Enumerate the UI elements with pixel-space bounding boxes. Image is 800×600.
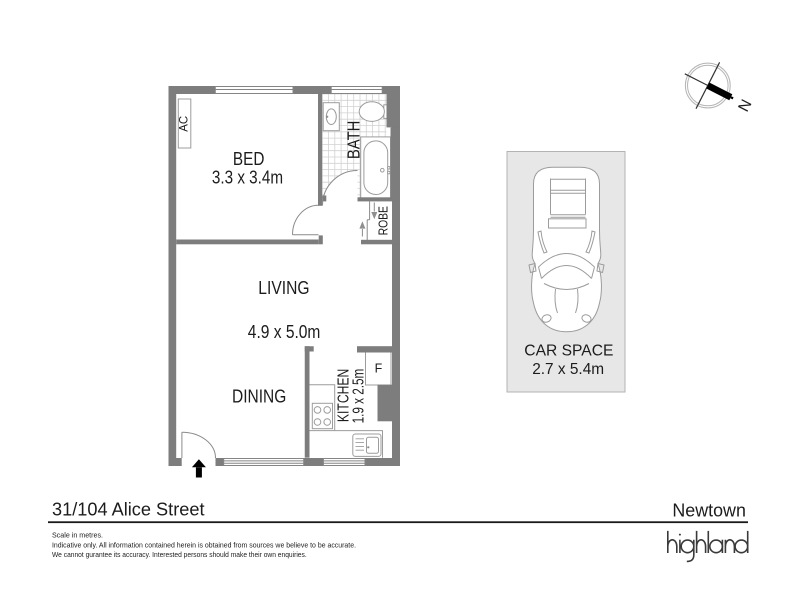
svg-text:3.3 x 3.4m: 3.3 x 3.4m bbox=[212, 166, 283, 187]
svg-text:2.7 x 5.4m: 2.7 x 5.4m bbox=[532, 361, 604, 378]
svg-text:AC: AC bbox=[177, 115, 191, 131]
svg-text:LIVING: LIVING bbox=[258, 277, 309, 298]
svg-text:N: N bbox=[734, 96, 754, 114]
svg-text:31/104 Alice Street: 31/104 Alice Street bbox=[52, 499, 204, 519]
svg-text:4.9 x 5.0m: 4.9 x 5.0m bbox=[248, 321, 321, 342]
svg-text:BATH: BATH bbox=[343, 121, 363, 160]
svg-text:1.9 x 2.5m: 1.9 x 2.5m bbox=[350, 369, 367, 424]
svg-text:DINING: DINING bbox=[232, 386, 286, 407]
svg-text:ROBE: ROBE bbox=[375, 206, 390, 235]
svg-text:CAR SPACE: CAR SPACE bbox=[524, 342, 613, 359]
svg-text:F: F bbox=[375, 362, 383, 376]
svg-text:Newtown: Newtown bbox=[672, 500, 746, 520]
svg-text:Indicative only. All informati: Indicative only. All information contain… bbox=[52, 540, 356, 549]
svg-text:Scale in metres.: Scale in metres. bbox=[52, 531, 103, 540]
svg-text:We cannot gurantee its accurac: We cannot gurantee its accuracy. Interes… bbox=[52, 550, 307, 559]
